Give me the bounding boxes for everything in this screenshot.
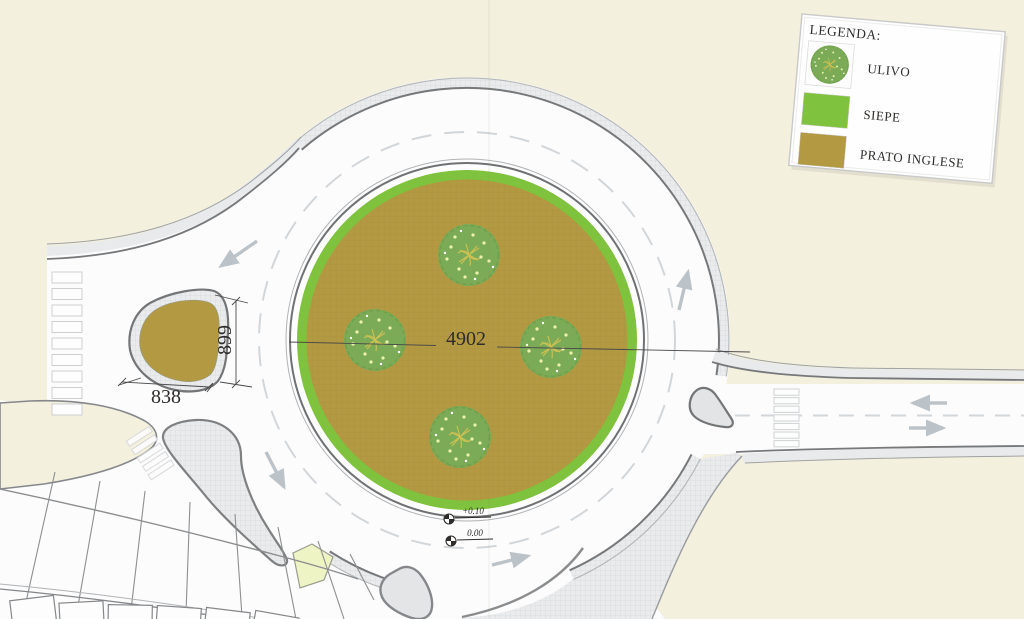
olive-tree-west <box>344 309 406 371</box>
olive-tree-east <box>520 316 582 378</box>
svg-text:0.00: 0.00 <box>467 528 483 538</box>
legend-lawn-swatch <box>798 132 847 168</box>
dimension-838: 838 <box>151 386 181 408</box>
dimension-899: 899 <box>214 325 236 355</box>
plan-canvas: 4902 899 838 +0.10 0.00 <box>0 0 1024 619</box>
svg-text:+0.10: +0.10 <box>462 506 484 516</box>
east-zebra-crossing <box>774 389 799 447</box>
olive-tree-south <box>429 406 491 468</box>
west-zebra-crossing <box>52 272 82 415</box>
svg-text:4902: 4902 <box>446 328 486 350</box>
legend-hedge-swatch <box>801 92 850 128</box>
legend-box: LEGENDA: ULIVO SIEPE PRATO INGLESE <box>788 14 1008 187</box>
roundabout-plan-drawing: 4902 899 838 +0.10 0.00 <box>0 0 1024 619</box>
olive-tree-north <box>438 224 500 286</box>
